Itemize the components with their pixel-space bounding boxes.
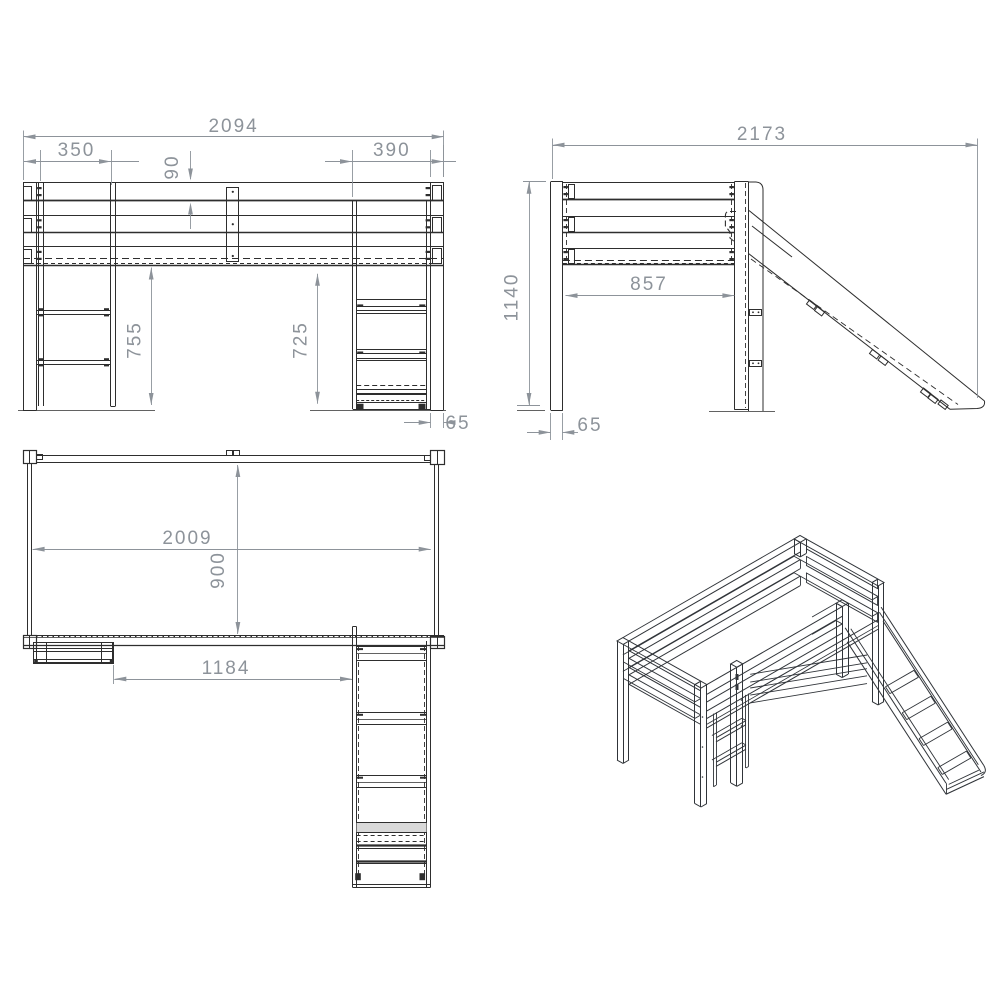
svg-text:900: 900 <box>208 551 229 589</box>
svg-text:2094: 2094 <box>208 116 258 137</box>
svg-text:2173: 2173 <box>737 124 787 145</box>
svg-text:755: 755 <box>125 321 146 359</box>
svg-text:390: 390 <box>373 140 411 161</box>
svg-text:725: 725 <box>291 321 312 359</box>
svg-text:1140: 1140 <box>502 273 523 322</box>
svg-text:2009: 2009 <box>162 528 212 549</box>
svg-text:65: 65 <box>445 413 470 434</box>
svg-text:350: 350 <box>58 140 96 161</box>
svg-text:65: 65 <box>577 415 602 436</box>
svg-text:1184: 1184 <box>202 658 251 679</box>
svg-text:857: 857 <box>630 274 668 295</box>
svg-text:90: 90 <box>162 154 183 179</box>
